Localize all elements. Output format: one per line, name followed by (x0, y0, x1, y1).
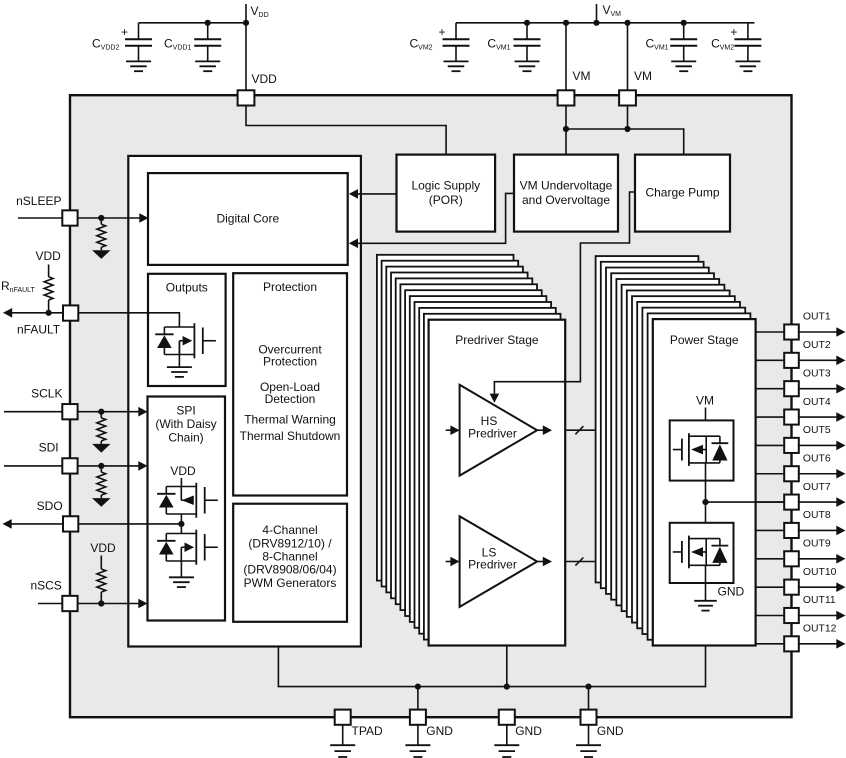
svg-text:(POR): (POR) (429, 193, 463, 207)
svg-text:VDD: VDD (252, 72, 278, 86)
svg-text:OUT1: OUT1 (803, 312, 831, 323)
svg-text:SDO: SDO (37, 499, 63, 513)
svg-text:4-Channel: 4-Channel (262, 523, 317, 537)
svg-text:Protection: Protection (263, 280, 317, 294)
svg-text:nFAULT: nFAULT (17, 323, 61, 337)
svg-text:OUT5: OUT5 (803, 425, 831, 436)
svg-text:8-Channel: 8-Channel (262, 550, 317, 564)
svg-text:GND: GND (515, 724, 542, 738)
svg-text:Logic Supply: Logic Supply (411, 179, 480, 193)
svg-text:+: + (439, 25, 446, 39)
svg-text:VM: VM (696, 394, 714, 408)
svg-text:(DRV8912/10) /: (DRV8912/10) / (248, 537, 332, 551)
svg-text:SPI: SPI (176, 404, 195, 418)
svg-text:Digital Core: Digital Core (216, 212, 279, 226)
svg-text:VM: VM (634, 69, 652, 83)
svg-text:(DRV8908/06/04): (DRV8908/06/04) (243, 563, 336, 577)
svg-text:Thermal Shutdown: Thermal Shutdown (240, 429, 341, 443)
svg-text:OUT9: OUT9 (803, 539, 831, 550)
svg-text:OUT8: OUT8 (803, 510, 831, 521)
svg-text:VDD: VDD (170, 464, 196, 478)
svg-text:(With Daisy: (With Daisy (155, 417, 216, 431)
svg-text:Power Stage: Power Stage (670, 333, 739, 347)
svg-text:SDI: SDI (39, 441, 59, 455)
svg-text:OUT3: OUT3 (803, 368, 831, 379)
svg-text:+: + (730, 25, 737, 39)
svg-text:PWM Generators: PWM Generators (244, 576, 337, 590)
svg-text:GND: GND (597, 724, 624, 738)
svg-text:OUT11: OUT11 (803, 595, 836, 606)
svg-text:OUT12: OUT12 (803, 624, 837, 635)
svg-text:Predriver: Predriver (468, 426, 517, 440)
svg-text:nSCS: nSCS (30, 579, 61, 593)
svg-text:VDD: VDD (36, 249, 62, 263)
svg-text:nSLEEP: nSLEEP (16, 194, 61, 208)
svg-text:Predriver Stage: Predriver Stage (455, 333, 539, 347)
svg-text:OUT4: OUT4 (803, 397, 831, 408)
svg-text:and Overvoltage: and Overvoltage (522, 193, 610, 207)
svg-text:OUT7: OUT7 (803, 482, 831, 493)
svg-text:+: + (121, 25, 128, 39)
svg-text:GND: GND (718, 585, 745, 599)
svg-text:Predriver: Predriver (468, 558, 517, 572)
svg-text:Detection: Detection (265, 392, 316, 406)
svg-text:Charge Pump: Charge Pump (645, 186, 719, 200)
svg-text:VM: VM (573, 69, 591, 83)
svg-text:VM Undervoltage: VM Undervoltage (520, 179, 613, 193)
svg-text:VDD: VDD (90, 541, 116, 555)
svg-text:Chain): Chain) (168, 431, 203, 445)
svg-text:SCLK: SCLK (31, 387, 62, 401)
svg-text:OUT2: OUT2 (803, 340, 831, 351)
svg-text:Outputs: Outputs (166, 281, 208, 295)
svg-text:Protection: Protection (263, 354, 317, 368)
svg-text:TPAD: TPAD (352, 724, 383, 738)
svg-text:OUT6: OUT6 (803, 453, 831, 464)
svg-text:Thermal Warning: Thermal Warning (244, 412, 336, 426)
svg-text:OUT10: OUT10 (803, 567, 837, 578)
svg-text:GND: GND (426, 724, 453, 738)
